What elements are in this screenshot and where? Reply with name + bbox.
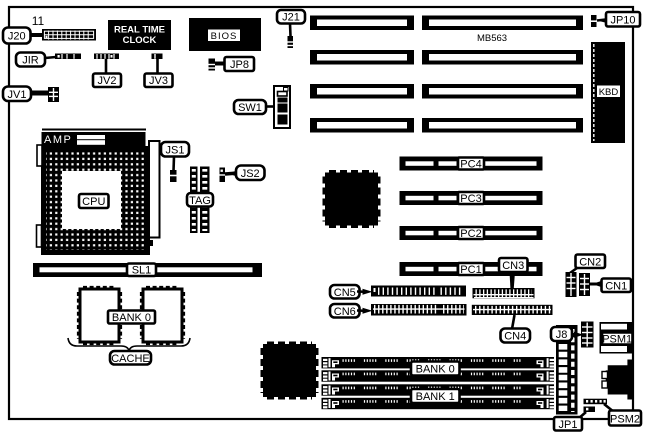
svg-text:J21: J21 xyxy=(282,12,300,24)
svg-text:BANK 0: BANK 0 xyxy=(112,312,151,324)
svg-text:PC4: PC4 xyxy=(460,158,481,170)
svg-text:PC2: PC2 xyxy=(460,228,481,240)
svg-text:AMP: AMP xyxy=(44,134,72,146)
svg-text:JP10: JP10 xyxy=(610,15,635,27)
svg-text:JS2: JS2 xyxy=(241,168,260,180)
svg-text:PC1: PC1 xyxy=(460,264,481,276)
svg-text:11: 11 xyxy=(32,14,45,28)
svg-text:CN6: CN6 xyxy=(334,306,356,318)
svg-text:REAL TIME: REAL TIME xyxy=(114,25,165,36)
svg-text:JIR: JIR xyxy=(22,55,39,67)
svg-text:SL1: SL1 xyxy=(132,265,152,277)
svg-text:PSM1: PSM1 xyxy=(602,333,632,345)
svg-text:CPU: CPU xyxy=(82,196,105,208)
svg-text:JV3: JV3 xyxy=(149,75,168,87)
svg-text:BIOS: BIOS xyxy=(211,31,238,42)
svg-text:SW1: SW1 xyxy=(238,102,262,114)
svg-text:JV1: JV1 xyxy=(8,89,27,101)
svg-text:TAG: TAG xyxy=(189,195,211,207)
svg-text:CLOCK: CLOCK xyxy=(123,35,157,46)
svg-text:CN4: CN4 xyxy=(504,331,526,343)
svg-text:CN2: CN2 xyxy=(579,256,601,268)
svg-text:J8: J8 xyxy=(556,329,568,341)
svg-text:MB563: MB563 xyxy=(477,33,507,44)
svg-text:J20: J20 xyxy=(8,31,26,43)
svg-text:JP1: JP1 xyxy=(559,419,578,431)
svg-text:CN5: CN5 xyxy=(334,287,356,299)
svg-text:CACHE: CACHE xyxy=(111,353,150,365)
svg-text:PC3: PC3 xyxy=(460,193,481,205)
svg-text:KBD: KBD xyxy=(599,87,619,98)
svg-text:BANK 0: BANK 0 xyxy=(416,364,455,376)
svg-text:BANK 1: BANK 1 xyxy=(416,391,455,403)
svg-text:CN3: CN3 xyxy=(502,260,524,272)
svg-text:JS1: JS1 xyxy=(166,145,185,157)
svg-text:PSM2: PSM2 xyxy=(610,414,640,426)
svg-text:JP8: JP8 xyxy=(230,59,249,71)
svg-text:JV2: JV2 xyxy=(98,75,117,87)
svg-text:CN1: CN1 xyxy=(605,280,627,292)
